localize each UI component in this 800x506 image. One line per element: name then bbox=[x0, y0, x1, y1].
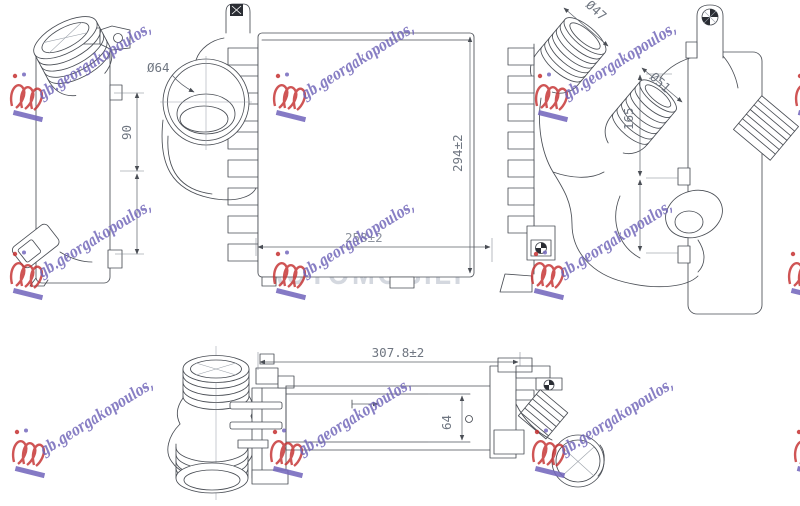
dim-bottom-length-label: 307.8±2 bbox=[372, 345, 425, 360]
bottom-right-assembly bbox=[490, 358, 604, 487]
dim-main-port-label: Ø64 bbox=[147, 60, 170, 75]
screw-cross-icon bbox=[702, 9, 718, 25]
dim-hose-47-label: Ø47 bbox=[583, 0, 610, 23]
product-drawing-image: gb.georgakopoulos, POLOVNI AUTOMOBILI bbox=[0, 0, 800, 506]
view-bottom: 307.8±2 64 bbox=[168, 345, 604, 500]
dim-bottom-depth: 64 bbox=[428, 394, 468, 442]
dim-bottom-length: 307.8±2 bbox=[258, 345, 520, 370]
dim-front-height-label: 90 bbox=[119, 125, 134, 140]
technical-drawing: gb.georgakopoulos, POLOVNI AUTOMOBILI bbox=[0, 0, 800, 506]
dim-side-height-label: 165 bbox=[621, 107, 636, 130]
dim-main-height-label: 294±2 bbox=[450, 134, 465, 172]
dim-bottom-depth-label: 64 bbox=[439, 415, 454, 430]
bottom-port-top bbox=[177, 356, 253, 425]
side-fitting bbox=[527, 226, 555, 260]
bottom-port-bottom bbox=[176, 444, 248, 493]
view-main: 294±2 258±2 Ø64 bbox=[147, 4, 492, 288]
side-hose-51-exit bbox=[733, 96, 798, 161]
